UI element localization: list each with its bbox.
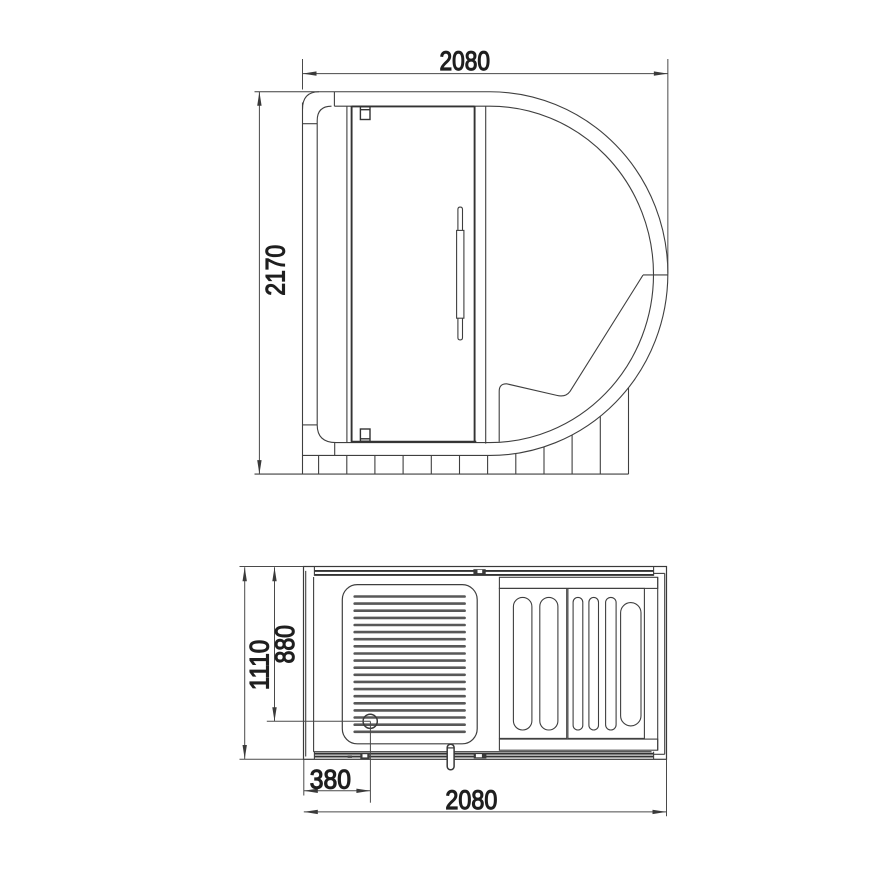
svg-text:380: 380 — [310, 765, 351, 795]
svg-text:2080: 2080 — [445, 785, 497, 815]
svg-text:880: 880 — [270, 625, 300, 664]
svg-text:2080: 2080 — [440, 46, 491, 76]
svg-text:2170: 2170 — [261, 245, 291, 296]
